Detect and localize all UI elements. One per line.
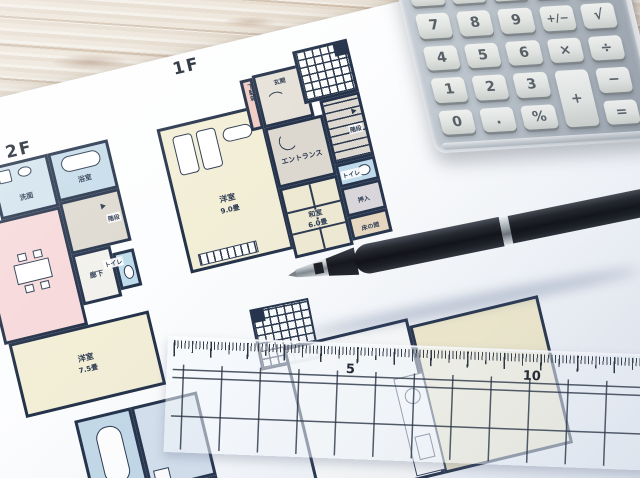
balcony-corner xyxy=(250,308,265,323)
chair-icon xyxy=(24,284,35,294)
pen-metal-cone xyxy=(294,258,331,282)
room-hallway-label: 廊下 xyxy=(79,267,114,283)
room-alcove-label: 床の間 xyxy=(353,219,389,234)
chair-icon xyxy=(17,253,28,263)
calc-key-sqrt[interactable]: √ xyxy=(579,2,618,28)
calc-key-percent[interactable]: % xyxy=(520,104,559,130)
calc-key-3[interactable]: 3 xyxy=(512,72,551,98)
calc-key-decimal[interactable]: . xyxy=(479,106,518,132)
sink-icon xyxy=(17,165,33,178)
calc-key-2[interactable]: 2 xyxy=(471,74,510,100)
balcony-corner xyxy=(332,41,348,57)
chair-icon xyxy=(32,249,43,259)
room-toilet-1f-label: トイレ xyxy=(340,167,362,180)
calc-key-cm[interactable]: CM xyxy=(408,0,446,7)
sofa-icon xyxy=(221,122,253,143)
calc-key-plus[interactable]: + xyxy=(553,69,600,127)
calc-key-mminus[interactable]: M− xyxy=(490,0,528,2)
door-arc-icon xyxy=(265,90,289,114)
calc-key-0[interactable]: 0 xyxy=(438,109,477,135)
bathtub-icon xyxy=(59,149,102,174)
room-entrance-hall-label: エントランス xyxy=(275,147,329,168)
washing-machine-icon xyxy=(0,169,13,185)
sink-icon xyxy=(153,467,171,478)
calc-key-plusminus[interactable]: +/− xyxy=(538,5,577,31)
calc-key-9[interactable]: 9 xyxy=(497,7,536,33)
calc-key-divide[interactable]: ÷ xyxy=(587,34,626,60)
door-arc-icon xyxy=(277,130,299,152)
calc-key-equals[interactable]: = xyxy=(602,99,640,125)
room-closet-label: 押入 xyxy=(346,192,382,207)
toilet-icon xyxy=(122,264,135,280)
bathtub-icon xyxy=(94,423,133,478)
calc-key-1[interactable]: 1 xyxy=(430,77,469,103)
stairs-arrow-icon xyxy=(100,203,106,210)
calc-key-minus[interactable]: − xyxy=(595,67,634,93)
ruler-grid xyxy=(170,364,640,468)
calc-key-rm[interactable]: RM xyxy=(449,0,487,4)
calc-key-7[interactable]: 7 xyxy=(415,12,454,38)
desk-photo: 2F 洗面 浴室 冷 階段 xyxy=(0,0,640,478)
ruler: 5 10 xyxy=(164,336,640,471)
bed-icon xyxy=(195,127,224,171)
calculator-keypad: CM RM M− M+ C-CE 7 8 9 +/− √ 4 5 6 × ÷ 1… xyxy=(408,0,640,135)
room-stairs-1f-label: 階段 xyxy=(348,123,364,135)
calc-key-5[interactable]: 5 xyxy=(463,42,502,68)
room-stairs-2f-label: 階段 xyxy=(106,211,122,223)
room-washroom-label: 洗面 xyxy=(0,187,54,208)
pen-cone-detail xyxy=(313,262,324,275)
calc-key-multiply[interactable]: × xyxy=(546,37,585,63)
calc-key-4[interactable]: 4 xyxy=(422,45,461,71)
calc-key-6[interactable]: 6 xyxy=(505,40,544,66)
floor-plan-2f: 洗面 浴室 冷 階段 廊下 トイレ xyxy=(0,139,168,419)
calc-key-8[interactable]: 8 xyxy=(456,10,495,36)
stairs-arrow-icon xyxy=(351,107,357,114)
chair-icon xyxy=(40,280,51,290)
room-genkan-label: 玄関 xyxy=(257,73,303,91)
floor1-title: 1F xyxy=(171,54,202,80)
porch-stripes xyxy=(198,240,259,266)
